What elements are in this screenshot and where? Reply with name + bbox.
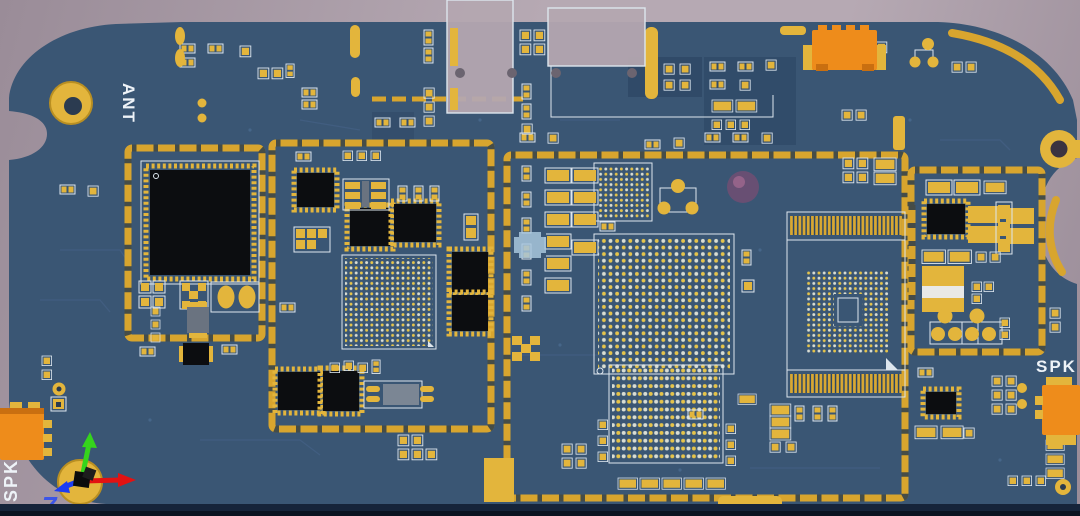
mounting-hole-top-left <box>50 82 92 124</box>
ic-right-module[interactable] <box>924 201 968 237</box>
board-edge-bottom <box>0 504 1080 516</box>
bga-footprint-small-center[interactable] <box>594 163 652 221</box>
screw-marker <box>455 68 465 78</box>
speaker-label-right: SPK <box>1036 357 1077 376</box>
ic-bottom-right[interactable] <box>923 389 959 417</box>
memory-bga-footprint-bottom[interactable] <box>609 365 723 463</box>
power-inductor[interactable] <box>922 266 964 312</box>
screw-marker <box>507 68 517 78</box>
pcb-3d-viewport[interactable]: ANT SPK SPK 7 <box>0 0 1080 516</box>
screw-marker <box>551 68 561 78</box>
screw-marker <box>627 68 637 78</box>
usb-connector-footprint[interactable] <box>447 0 517 113</box>
qfn-ic-large[interactable] <box>141 161 259 284</box>
ic-small-left[interactable] <box>179 343 213 365</box>
pcb-render-canvas[interactable]: ANT SPK SPK 7 <box>0 0 1080 516</box>
shield-tab <box>484 458 514 502</box>
pcb-board[interactable]: ANT SPK SPK 7 <box>0 0 1080 516</box>
highlight-sphere <box>727 171 759 203</box>
main-soc-bga-footprint[interactable] <box>594 234 734 374</box>
bga-footprint-left[interactable] <box>342 255 436 349</box>
speaker-label-left: SPK <box>1 459 21 502</box>
antenna-label: ANT <box>119 83 138 124</box>
board-to-board-connector-top[interactable] <box>803 25 886 71</box>
